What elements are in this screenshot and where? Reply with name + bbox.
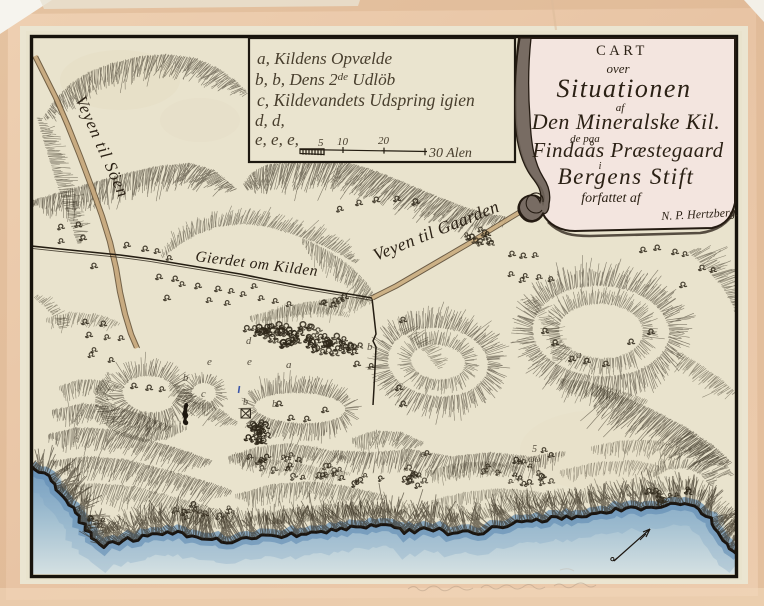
- svg-text:Situationen: Situationen: [557, 74, 692, 103]
- svg-text:a, Kildens Opvælde: a, Kildens Opvælde: [257, 49, 392, 68]
- svg-text:d: d: [246, 336, 252, 347]
- svg-text:e: e: [247, 356, 252, 368]
- svg-text:Bergens Stift: Bergens Stift: [558, 164, 695, 189]
- svg-text:b: b: [243, 397, 248, 408]
- svg-text:ωω: ωω: [528, 454, 541, 464]
- svg-text:b: b: [183, 373, 188, 384]
- svg-text:e: e: [207, 356, 212, 368]
- svg-text:5: 5: [318, 137, 324, 149]
- svg-text:30 Alen: 30 Alen: [428, 146, 472, 161]
- svg-text:d, d,: d, d,: [255, 111, 285, 130]
- svg-text:forfattet af: forfattet af: [581, 191, 643, 206]
- svg-text:e, e, e,: e, e, e,: [255, 130, 299, 149]
- svg-text:20: 20: [378, 135, 390, 147]
- svg-text:CART: CART: [596, 43, 648, 59]
- svg-text:b: b: [272, 399, 277, 410]
- svg-text:b: b: [367, 341, 373, 353]
- svg-text:c, Kildevandets Udspring igien: c, Kildevandets Udspring igien: [257, 90, 475, 110]
- svg-text:a: a: [286, 359, 292, 371]
- svg-text:10: 10: [337, 136, 349, 148]
- svg-text:a: a: [576, 349, 582, 361]
- svg-text:Den Mineralske Kil.: Den Mineralske Kil.: [531, 109, 721, 134]
- svg-text:b, b, Dens 2de Udlöb: b, b, Dens 2de Udlöb: [255, 70, 396, 89]
- svg-text:Findaås Præstegaard: Findaås Præstegaard: [531, 138, 723, 162]
- svg-text:c: c: [201, 389, 206, 400]
- svg-text:e: e: [420, 448, 425, 460]
